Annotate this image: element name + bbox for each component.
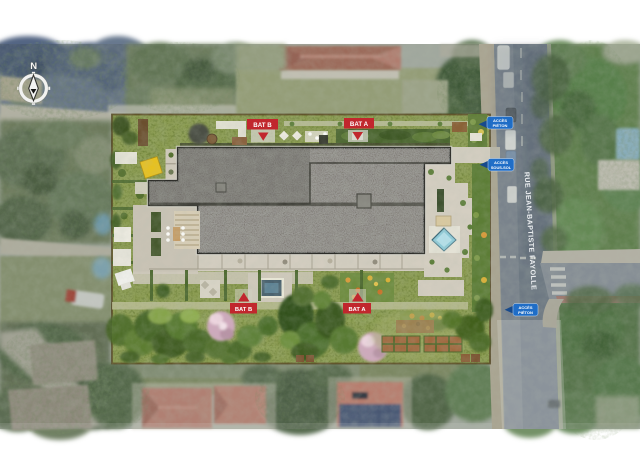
svg-text:BAT B: BAT B [253,122,272,129]
svg-text:BAT A: BAT A [350,121,369,128]
svg-text:PIÉTON: PIÉTON [518,310,533,315]
svg-text:BAT B: BAT B [235,307,252,313]
svg-text:BAT A: BAT A [348,307,366,313]
svg-text:N: N [30,61,37,72]
svg-text:SOUS-SOL: SOUS-SOL [491,165,512,170]
svg-text:PIÉTON: PIÉTON [493,123,508,128]
